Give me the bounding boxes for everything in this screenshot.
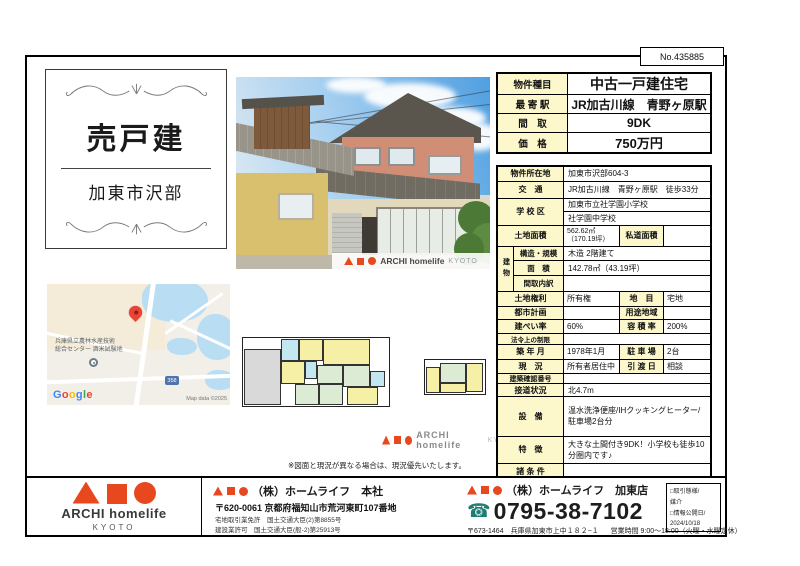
brand-sub: KYOTO	[93, 523, 136, 532]
row-value: JR加古川線 青野ヶ原駅 徒歩33分	[564, 182, 710, 198]
building-rows: 構造・規模 木造 2階建て 面 積 142.78㎡（43.19坪） 間取内訳	[514, 247, 710, 291]
property-photo: ARCHI homelife KYOTO	[236, 77, 490, 269]
watermark-brand: ARCHI homelife	[416, 430, 483, 450]
circle-logo-icon	[368, 257, 376, 265]
sale-type-title: 売戸建	[87, 114, 186, 158]
head-office-address: 〒620-0061 京都府福知山市荒河東町107番地	[215, 501, 463, 514]
row-label: 地 目	[620, 292, 664, 306]
row-value: 北4.7m	[564, 384, 710, 396]
phone-row: ☎ 0795-38-7102	[467, 498, 692, 525]
photo-watermark: ARCHI homelife KYOTO	[332, 253, 490, 269]
row-label: 私道面積	[620, 226, 664, 246]
left-gable-cap	[242, 95, 324, 109]
square-logo-icon	[107, 484, 127, 504]
row-label: 用途地域	[620, 307, 664, 320]
building-group-label: 建物	[498, 247, 514, 291]
circle-logo-icon	[134, 482, 156, 504]
row-label: 学 校 区	[498, 199, 564, 226]
watermark-brand: ARCHI homelife	[380, 256, 444, 266]
table-row-school: 学 校 区 加東市立社学園小学校 社学園中学校	[498, 199, 710, 227]
plan-room	[370, 371, 385, 387]
school-values: 加東市立社学園小学校 社学園中学校	[564, 199, 710, 226]
head-office-name: （株）ホームライフ 本社	[252, 483, 383, 499]
row-value: 60%	[564, 320, 620, 333]
table-row: 接道状況 北4.7m	[498, 384, 710, 397]
table-row: 土地権利 所有権 地 目 宅地	[498, 292, 710, 307]
flourish-ornament-top	[59, 80, 214, 104]
plan-room	[343, 365, 370, 387]
table-row: 現 況 所有者居住中 引 渡 日 相談	[498, 360, 710, 374]
transaction-info-box: □取引態様/ 媒介 □情報公開日/ 2024/10/18	[666, 483, 721, 532]
row-value: 142.78㎡（43.19坪）	[564, 261, 710, 275]
row-label: 特 徴	[498, 437, 564, 464]
row-label: 価 格	[498, 133, 568, 152]
row-label: 築 年 月	[498, 345, 564, 359]
row-label: 設 備	[498, 397, 564, 435]
plan-room	[295, 384, 319, 405]
branch-heading: （株）ホームライフ 加東店	[467, 482, 692, 498]
row-value: 加東市沢部604-3	[564, 167, 710, 181]
row-label: 土地面積	[498, 226, 564, 246]
map-pond	[167, 338, 197, 355]
plan-room	[440, 383, 466, 393]
circle-logo-icon	[405, 436, 412, 445]
row-label: 交 通	[498, 182, 564, 198]
row-value: 9DK	[568, 114, 710, 132]
plan-room	[281, 339, 299, 361]
deal-type-value: 媒介	[670, 498, 717, 509]
head-office-heading: （株）ホームライフ 本社	[213, 483, 463, 499]
row-label: 面 積	[514, 261, 564, 275]
google-logo: Google	[53, 389, 93, 401]
brand-name: ARCHI homelife	[61, 506, 166, 521]
triangle-logo-icon	[382, 436, 390, 445]
row-label: 建築確認番号	[498, 374, 564, 384]
row-value: 温水洗浄便座/IHクッキングヒーター/駐車場2台分	[564, 397, 710, 435]
table-row: 建築確認番号	[498, 374, 710, 385]
row-label: 都市計画	[498, 307, 564, 320]
row-label: 物件所在地	[498, 167, 564, 181]
row-value: 1978年1月	[564, 345, 620, 359]
garage-shutter	[332, 213, 362, 257]
building-group: 建物 構造・規模 木造 2階建て 面 積 142.78㎡（43.19坪） 間取内…	[498, 247, 710, 292]
plan-room	[281, 361, 305, 384]
branch-block: （株）ホームライフ 加東店 ☎ 0795-38-7102 〒673-1464 兵…	[467, 482, 692, 536]
plan-room	[426, 367, 440, 393]
table-row: 設 備 温水洗浄便座/IHクッキングヒーター/駐車場2台分	[498, 397, 710, 436]
plan-room	[440, 363, 466, 383]
floor-plan-1f	[242, 337, 390, 407]
table-row: 都市計画 用途地域	[498, 307, 710, 321]
square-logo-icon	[227, 487, 235, 495]
row-value: 所有権	[564, 292, 620, 306]
detail-table: 物件所在地 加東市沢部604-3 交 通 JR加古川線 青野ヶ原駅 徒歩33分 …	[496, 165, 712, 480]
left-window	[278, 193, 314, 220]
table-row: 特 徴 大きな土間付き9DK！小学校も徒歩10分圏内です♪	[498, 437, 710, 465]
triangle-logo-icon	[344, 257, 353, 265]
table-row: 土地面積 562.62㎡（170.19坪） 私道面積	[498, 226, 710, 247]
title-card: 売戸建 加東市沢部	[45, 69, 227, 249]
circle-logo-icon	[493, 486, 502, 495]
row-label: 容 積 率	[620, 320, 664, 333]
row-value	[564, 276, 710, 291]
plan-room	[323, 339, 370, 365]
row-value: 所有者居住中	[564, 360, 620, 373]
plan-room	[319, 384, 343, 405]
plan-room	[299, 339, 323, 361]
company-logo: ARCHI homelife KYOTO	[27, 478, 202, 535]
left-gable-wood	[254, 103, 310, 149]
row-value	[664, 226, 710, 246]
square-logo-icon	[394, 436, 401, 444]
deal-type-label: □取引態様/	[670, 487, 717, 498]
row-value: 200%	[664, 320, 710, 333]
phone-icon: ☎	[467, 502, 491, 521]
row-label: 接道状況	[498, 384, 564, 396]
row-label: 最 寄 駅	[498, 95, 568, 113]
license-2: 建設業許可 国土交通大臣(般-2)第25913号	[215, 526, 463, 536]
row-value: 宅地	[664, 292, 710, 306]
row-label: 物件種目	[498, 74, 568, 94]
property-area-title: 加東市沢部	[89, 179, 184, 204]
triangle-logo-icon	[213, 487, 223, 496]
logo-shapes-icon	[73, 482, 156, 504]
location-map: 兵庫県立農林水産技術 総合センター 酒米試験地 358 Google Map d…	[47, 284, 230, 405]
plan-room	[317, 365, 343, 384]
plan-room	[347, 387, 378, 405]
cloud	[326, 77, 386, 93]
table-row: 法令上の制限	[498, 334, 710, 345]
row-value: 2台	[664, 345, 710, 359]
row-value: 中古一戸建住宅	[568, 74, 710, 94]
floorplan-note: ※図面と現況が異なる場合は、現況優先いたします。	[232, 460, 522, 471]
row-value: 大きな土間付き9DK！小学校も徒歩10分圏内です♪	[564, 437, 710, 464]
table-row: 間取内訳	[514, 276, 710, 291]
watermark-sub: KYOTO	[448, 258, 477, 265]
entrance-door	[362, 217, 377, 257]
head-office-block: （株）ホームライフ 本社 〒620-0061 京都府福知山市荒河東町107番地 …	[213, 483, 463, 536]
table-row: 物件種目 中古一戸建住宅	[498, 74, 710, 95]
row-value	[564, 374, 710, 384]
table-row: 構造・規模 木造 2階建て	[514, 247, 710, 262]
triangle-logo-icon	[73, 482, 100, 504]
square-logo-icon	[357, 258, 364, 265]
title-divider	[61, 168, 211, 169]
row-value: 相談	[664, 360, 710, 373]
row-label: 現 況	[498, 360, 564, 373]
table-row: 交 通 JR加古川線 青野ヶ原駅 徒歩33分	[498, 182, 710, 199]
row-label: 引 渡 日	[620, 360, 664, 373]
route-shield: 358	[165, 376, 179, 385]
summary-table: 物件種目 中古一戸建住宅 最 寄 駅 JR加古川線 青野ヶ原駅 間 取 9DK …	[496, 72, 712, 154]
row-value: 木造 2階建て	[564, 247, 710, 261]
row-value: 562.62㎡（170.19坪）	[564, 226, 620, 246]
table-row: 築 年 月 1978年1月 駐 車 場 2台	[498, 345, 710, 360]
floor-plan-2f	[424, 359, 486, 395]
license-1: 宅地取引業免許 国土交通大臣(2)第8855号	[215, 516, 463, 526]
upper-window	[428, 155, 462, 175]
school-elementary: 加東市立社学園小学校	[564, 199, 710, 213]
flyer-body: 売戸建 加東市沢部	[25, 55, 727, 537]
license-lines: 宅地取引業免許 国土交通大臣(2)第8855号 建設業許可 国土交通大臣(般-2…	[215, 516, 463, 536]
row-value	[564, 334, 710, 344]
map-poi-label: 兵庫県立農林水産技術 総合センター 酒米試験地	[55, 339, 123, 355]
table-row: 価 格 750万円	[498, 133, 710, 152]
row-value	[564, 307, 620, 320]
plan-room	[244, 349, 281, 405]
table-row: 物件所在地 加東市沢部604-3	[498, 167, 710, 182]
branch-address-hours: 〒673-1464 兵庫県加東市上中１８２−１ 営業時間 9:00～18:00（…	[467, 526, 692, 536]
document-number: No.435885	[640, 47, 724, 66]
circle-logo-icon	[239, 487, 248, 496]
table-row: 建ぺい率 60% 容 積 率 200%	[498, 320, 710, 334]
triangle-logo-icon	[467, 486, 477, 495]
table-row: 面 積 142.78㎡（43.19坪）	[514, 261, 710, 276]
plan-room	[305, 361, 317, 379]
row-label: 法令上の制限	[498, 334, 564, 344]
row-label: 土地権利	[498, 292, 564, 306]
branch-address: 〒673-1464 兵庫県加東市上中１８２−１	[467, 528, 599, 535]
row-label: 間 取	[498, 114, 568, 132]
row-label: 間取内訳	[514, 276, 564, 291]
flyer-page: No.435885 売戸建 加東市沢部	[0, 0, 800, 566]
row-value: 750万円	[568, 133, 710, 152]
square-logo-icon	[481, 486, 489, 494]
table-row: 最 寄 駅 JR加古川線 青野ヶ原駅	[498, 95, 710, 114]
flourish-ornament-bottom	[59, 214, 214, 238]
branch-name: （株）ホームライフ 加東店	[506, 482, 648, 498]
map-copyright: Map data ©2025	[186, 396, 227, 402]
row-value: JR加古川線 青野ヶ原駅	[568, 95, 710, 113]
phone-number: 0795-38-7102	[494, 498, 643, 525]
table-row: 間 取 9DK	[498, 114, 710, 133]
upper-window	[388, 147, 415, 166]
upper-window	[354, 147, 381, 166]
school-junior-high: 社学園中学校	[564, 212, 710, 225]
publish-date-label: □情報公開日/	[670, 509, 717, 520]
footer: ARCHI homelife KYOTO （株）ホームライフ 本社 〒620-0…	[27, 476, 725, 535]
row-label: 構造・規模	[514, 247, 564, 261]
plan-room	[466, 363, 483, 392]
publish-date-value: 2024/10/18	[670, 519, 717, 530]
row-label: 駐 車 場	[620, 345, 664, 359]
map-poi-icon	[89, 358, 98, 367]
row-label: 建ぺい率	[498, 320, 564, 333]
row-value	[664, 307, 710, 320]
